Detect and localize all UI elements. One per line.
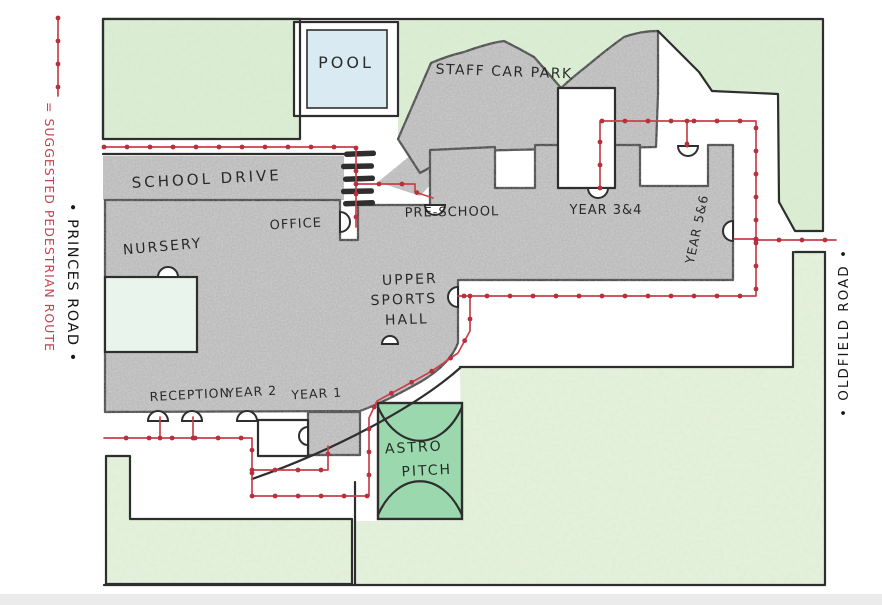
route-dot [685, 142, 690, 147]
route-dot [738, 119, 743, 124]
route-dot [250, 468, 255, 473]
label-hall: HALL [385, 311, 429, 329]
route-dot [286, 145, 291, 150]
top-left-green-area [103, 17, 300, 139]
route-dot [754, 218, 759, 223]
route-dot [577, 294, 582, 299]
label-astro: ASTRO [385, 439, 444, 458]
school-site-map-page: POOLSTAFF CAR PARKSCHOOL DRIVEOFFICEPRE-… [0, 0, 882, 605]
route-dot [531, 294, 536, 299]
route-dot [56, 39, 61, 44]
route-dot [354, 192, 359, 197]
route-dot [598, 186, 603, 191]
route-dot [623, 119, 628, 124]
route-dot [148, 145, 153, 150]
school-map-canvas: POOLSTAFF CAR PARKSCHOOL DRIVEOFFICEPRE-… [0, 0, 882, 605]
route-dot [217, 145, 222, 150]
route-dot [354, 146, 359, 151]
route-dot [600, 294, 605, 299]
route-dot [240, 145, 245, 150]
pedestrian-route-legend-label: = SUGGESTED PEDESTRIAN ROUTE [42, 102, 57, 432]
route-dot [508, 294, 513, 299]
route-dot [448, 356, 453, 361]
courtyard-north [558, 88, 615, 188]
route-dot [468, 294, 473, 299]
route-dot [354, 215, 359, 220]
route-dot [170, 436, 175, 441]
route-dot [194, 145, 199, 150]
courtyard-door-icon [299, 427, 308, 445]
route-dot [646, 294, 651, 299]
route-dot [296, 468, 301, 473]
route-dot [598, 163, 603, 168]
label-office: OFFICE [269, 216, 322, 234]
route-dot [669, 294, 674, 299]
route-dot [738, 294, 743, 299]
route-dot [777, 238, 782, 243]
route-dot [754, 287, 759, 292]
route-dot [377, 182, 382, 187]
route-dot [646, 119, 651, 124]
oldfield-road-label: • OLDFIELD ROAD • [836, 222, 852, 417]
crossing-bars-icon [341, 150, 376, 206]
route-dot [754, 172, 759, 177]
route-dot [692, 294, 697, 299]
route-dot [429, 369, 434, 374]
route-dot [191, 436, 196, 441]
route-dot [250, 448, 255, 453]
route-dot [124, 436, 129, 441]
route-dot [102, 145, 107, 150]
route-dot [367, 450, 372, 455]
year34-door-icon [678, 146, 698, 156]
route-dot [754, 195, 759, 200]
label-upper: UPPER [382, 271, 438, 289]
route-dot [326, 452, 331, 457]
route-dot [372, 405, 377, 410]
route-dot [319, 494, 324, 499]
route-dot [754, 238, 759, 243]
nursery-courtyard [105, 277, 197, 352]
label-pre-school: PRE-SCHOOL [405, 204, 500, 221]
route-dot [158, 436, 163, 441]
label-sports: SPORTS [370, 291, 437, 309]
route-dot [823, 238, 828, 243]
route-dot [273, 468, 278, 473]
route-legend-sample [56, 16, 61, 96]
route-dot [598, 140, 603, 145]
route-dot [754, 149, 759, 154]
label-pitch: PITCH [401, 462, 452, 481]
route-dot [715, 294, 720, 299]
route-dot [147, 436, 152, 441]
route-dot [367, 427, 372, 432]
year1-building-jut [308, 412, 360, 455]
route-dot [468, 317, 473, 322]
route-dot [250, 494, 255, 499]
route-dot [365, 494, 370, 499]
route-dot [171, 145, 176, 150]
route-dot [685, 119, 690, 124]
route-dot [56, 16, 61, 21]
office-door-icon [340, 212, 350, 232]
route-dot [669, 119, 674, 124]
route-notch-door-branch [685, 119, 690, 147]
route-dot [367, 473, 372, 478]
route-dot [554, 294, 559, 299]
route-dot [462, 338, 467, 343]
route-dot [623, 294, 628, 299]
route-dot [309, 145, 314, 150]
princes-road-label: • PRINCES ROAD • [64, 203, 80, 373]
label-pool: POOL [318, 53, 374, 72]
route-dot [485, 294, 490, 299]
route-dot [239, 436, 244, 441]
route-dot [125, 145, 130, 150]
route-dot [56, 85, 61, 90]
route-dot [715, 119, 720, 124]
label-year-2: YEAR 2 [225, 383, 277, 401]
route-dot [754, 126, 759, 131]
route-dot [354, 182, 359, 187]
route-dot [389, 391, 394, 396]
scan-edge-strip [0, 594, 882, 605]
route-dot [800, 238, 805, 243]
route-dot [400, 182, 405, 187]
route-dot [462, 294, 467, 299]
route-dot [692, 119, 697, 124]
route-dot [415, 190, 420, 195]
route-dot [296, 494, 301, 499]
route-dot [319, 468, 324, 473]
route-dot [354, 169, 359, 174]
route-dot [342, 494, 347, 499]
route-dot [56, 62, 61, 67]
hall-side-door-icon [382, 336, 398, 344]
route-dot [600, 119, 605, 124]
route-dot [409, 380, 414, 385]
label-year-3-4: YEAR 3&4 [569, 203, 643, 218]
label-year-1: YEAR 1 [290, 385, 342, 403]
route-oldfield-exit-branch [754, 238, 836, 243]
route-dot [332, 145, 337, 150]
route-dot [273, 494, 278, 499]
route-dot [754, 264, 759, 269]
route-dot [216, 436, 221, 441]
route-dot [263, 145, 268, 150]
